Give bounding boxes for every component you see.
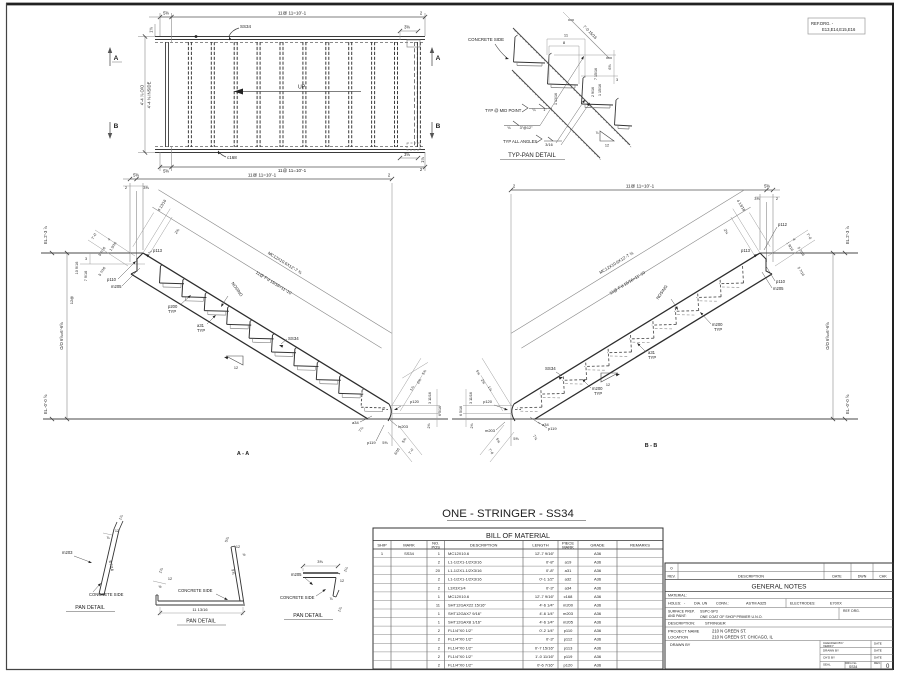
svg-text:p119: p119	[367, 440, 376, 445]
svg-text:3⅝: 3⅝	[317, 559, 323, 564]
svg-text:p113: p113	[741, 248, 751, 253]
svg-text:a19: a19	[565, 560, 572, 565]
svg-text:1’-0 11/16”: 1’-0 11/16”	[535, 654, 554, 659]
svg-text:BILL OF MATERIAL: BILL OF MATERIAL	[486, 531, 550, 540]
svg-text:TYP: TYP	[714, 327, 722, 332]
svg-text:20: 20	[436, 568, 441, 573]
svg-text:L1-1/2X1-1/2X3/16: L1-1/2X1-1/2X3/16	[448, 560, 482, 565]
svg-text:0’-3”: 0’-3”	[546, 637, 555, 642]
svg-text:SS34: SS34	[404, 551, 415, 556]
svg-text:3⅝: 3⅝	[404, 152, 410, 157]
svg-text:SHIP: SHIP	[377, 543, 387, 548]
svg-text:REV.: REV.	[667, 575, 675, 579]
svg-text:p112: p112	[778, 222, 788, 227]
svg-text:A36: A36	[594, 568, 602, 573]
svg-text:m205: m205	[111, 284, 122, 289]
svg-text:FL1/4”X0 1/2”: FL1/4”X0 1/2”	[448, 637, 473, 642]
svg-text:DATE: DATE	[874, 649, 882, 653]
svg-text:SS34: SS34	[288, 336, 299, 341]
svg-text:1⅛: 1⅛	[420, 157, 425, 163]
svg-text:MATERIAL:: MATERIAL:	[668, 594, 687, 598]
svg-text:210 N GREEN ST.: 210 N GREEN ST.	[712, 629, 746, 634]
svg-text:REF.DRG. -: REF.DRG. -	[811, 21, 834, 26]
svg-text:p110: p110	[776, 279, 786, 284]
svg-text:DESCRIPTION:: DESCRIPTION:	[668, 622, 695, 626]
svg-text:SSPC-SP3: SSPC-SP3	[700, 610, 718, 614]
svg-text:4’-4 ⅞ O/O: 4’-4 ⅞ O/O	[140, 84, 145, 105]
svg-text:6 5/16: 6 5/16	[438, 406, 442, 416]
svg-text:EL.-0’-0 ⅝: EL.-0’-0 ⅝	[845, 394, 850, 414]
svg-text:A36: A36	[594, 585, 602, 590]
svg-text:p110: p110	[107, 277, 117, 282]
svg-text:TYP: TYP	[648, 355, 656, 360]
svg-text:MARK: MARK	[403, 543, 415, 548]
svg-text:4’-6 1/4”: 4’-6 1/4”	[539, 620, 554, 625]
svg-text:A36: A36	[594, 611, 602, 616]
svg-text:VERIFY: VERIFY	[823, 644, 834, 648]
svg-text:12: 12	[168, 577, 172, 581]
svg-text:m203: m203	[62, 550, 73, 555]
svg-text:12: 12	[605, 144, 609, 148]
svg-text:12’-7 9/16”: 12’-7 9/16”	[535, 594, 555, 599]
svg-text:c168: c168	[227, 155, 237, 160]
svg-text:REV.: REV.	[874, 661, 881, 665]
svg-text:11@ 11=10’-1: 11@ 11=10’-1	[278, 168, 307, 173]
svg-text:a32: a32	[565, 577, 572, 582]
svg-text:AND PAINT:: AND PAINT:	[668, 614, 686, 618]
svg-text:SS34: SS34	[849, 665, 857, 669]
svg-text:REF. DRG.: REF. DRG.	[843, 609, 860, 613]
svg-text:3/16: 3/16	[545, 143, 552, 147]
svg-text:A36: A36	[594, 594, 602, 599]
svg-text:m205: m205	[291, 572, 302, 577]
svg-text:3: 3	[85, 257, 87, 261]
svg-text:12: 12	[115, 529, 119, 533]
svg-text:0’-1 1/2”: 0’-1 1/2”	[539, 577, 554, 582]
svg-text:A: A	[436, 55, 441, 62]
svg-text:FL1/4”X0 1/2”: FL1/4”X0 1/2”	[448, 628, 473, 633]
svg-text:m200: m200	[563, 602, 574, 607]
svg-text:MC12X10.6: MC12X10.6	[448, 551, 470, 556]
svg-text:A: A	[114, 55, 119, 62]
svg-text:POS: POS	[431, 545, 440, 550]
svg-text:PROJECT NAME: PROJECT NAME	[668, 629, 700, 634]
svg-text:HOLES:: HOLES:	[668, 602, 681, 606]
svg-text:EL.-0’-0 ⅝: EL.-0’-0 ⅝	[43, 394, 48, 414]
svg-text:12: 12	[606, 383, 610, 387]
svg-text:DRAWN BY: DRAWN BY	[823, 649, 839, 653]
svg-text:p120: p120	[410, 399, 420, 404]
svg-text:E13,E14,E15,E16: E13,E14,E15,E16	[822, 27, 856, 32]
svg-text:c168: c168	[564, 594, 573, 599]
svg-text:A36: A36	[594, 560, 602, 565]
svg-text:7 15/16: 7 15/16	[594, 68, 598, 80]
svg-text:6⅜: 6⅜	[608, 64, 612, 70]
svg-text:12: 12	[236, 545, 240, 549]
svg-text:STRINGER: STRINGER	[705, 621, 726, 626]
svg-text:FL1/4”X0 1/2”: FL1/4”X0 1/2”	[448, 645, 473, 650]
svg-text:DRAWN BY: DRAWN BY	[670, 643, 691, 647]
svg-text:CONCRETE SIDE: CONCRETE SIDE	[178, 588, 213, 593]
svg-text:m205: m205	[773, 286, 784, 291]
svg-text:CONCRETE SIDE: CONCRETE SIDE	[280, 595, 315, 600]
svg-text:SS34: SS34	[240, 24, 252, 29]
svg-text:CONCRETE SIDE: CONCRETE SIDE	[468, 37, 504, 42]
svg-text:FL1/4”X0 1/2”: FL1/4”X0 1/2”	[448, 662, 473, 667]
svg-text:11@ 11=10’-1: 11@ 11=10’-1	[248, 173, 277, 178]
svg-text:ONE - STRINGER - SS34: ONE - STRINGER - SS34	[442, 508, 574, 520]
svg-text:1⅛: 1⅛	[149, 27, 154, 33]
svg-text:GENERAL NOTES: GENERAL NOTES	[751, 584, 807, 591]
svg-text:12: 12	[340, 579, 344, 583]
svg-text:CONCRETE SIDE: CONCRETE SIDE	[89, 592, 124, 597]
svg-text:p119: p119	[564, 654, 573, 659]
svg-text:p119: p119	[548, 426, 557, 431]
svg-text:11 13/16: 11 13/16	[192, 607, 208, 612]
svg-text:UP: UP	[298, 85, 306, 91]
svg-text:A36: A36	[594, 654, 602, 659]
svg-text:11@ 11=10’-1: 11@ 11=10’-1	[278, 11, 307, 16]
svg-text:L3X3X1/4: L3X3X1/4	[448, 585, 466, 590]
svg-text:SHT12GAX7 9/16”: SHT12GAX7 9/16”	[448, 611, 482, 616]
svg-text:B: B	[114, 123, 119, 130]
svg-text:0’-7 15/16”: 0’-7 15/16”	[535, 645, 555, 650]
svg-text:DWN: DWN	[858, 575, 867, 579]
svg-text:SHT12GAX8 1/16”: SHT12GAX8 1/16”	[448, 620, 482, 625]
svg-text:LENGTH: LENGTH	[532, 543, 548, 548]
svg-text:A36: A36	[594, 577, 602, 582]
svg-text:A36: A36	[594, 602, 602, 607]
svg-text:⅞: ⅞	[596, 131, 599, 135]
svg-text:O/O 6⅝=6’-6⅝: O/O 6⅝=6’-6⅝	[825, 322, 830, 350]
svg-text:DESCRIPTION: DESCRIPTION	[738, 575, 764, 579]
svg-text:DATE: DATE	[874, 656, 882, 660]
svg-text:MARK: MARK	[562, 545, 574, 550]
svg-text:E70XX: E70XX	[830, 602, 842, 606]
svg-text:0’-8”: 0’-8”	[546, 560, 555, 565]
svg-text:DATE: DATE	[832, 575, 842, 579]
svg-text:6 5/16: 6 5/16	[459, 406, 463, 416]
svg-text:4’-6 1/4”: 4’-6 1/4”	[539, 602, 554, 607]
svg-text:TYP: TYP	[197, 328, 205, 333]
svg-text:3”@12”: 3”@12”	[520, 126, 533, 130]
svg-text:a34: a34	[352, 420, 359, 425]
svg-text:A36: A36	[594, 628, 602, 633]
svg-text:TYP ALL ANGLES: TYP ALL ANGLES	[503, 139, 537, 144]
svg-text:0’-3”: 0’-3”	[546, 585, 555, 590]
svg-text:PAN DETAIL: PAN DETAIL	[293, 613, 323, 619]
svg-text:4’-6 1/4”: 4’-6 1/4”	[539, 611, 554, 616]
svg-text:ONE COAT OF SHOP PRIMER U.N.O.: ONE COAT OF SHOP PRIMER U.N.O.	[700, 615, 763, 619]
svg-text:GRADE: GRADE	[590, 543, 605, 548]
svg-text:3⅝: 3⅝	[404, 25, 410, 30]
svg-text:12@: 12@	[69, 296, 74, 305]
svg-text:5⅝: 5⅝	[163, 11, 169, 16]
svg-text:A - A: A - A	[237, 451, 249, 457]
svg-text:A36: A36	[594, 662, 602, 667]
svg-text:SHT12GAX22 15/16”: SHT12GAX22 15/16”	[448, 602, 486, 607]
svg-text:A36: A36	[594, 637, 602, 642]
svg-text:MC12X10.6: MC12X10.6	[448, 594, 470, 599]
svg-text:½: ½	[243, 553, 246, 557]
svg-text:4’-4 ⅜ INSIDE: 4’-4 ⅜ INSIDE	[147, 81, 152, 108]
svg-text:L1-1/2X1-1/2X3/16: L1-1/2X1-1/2X3/16	[448, 577, 482, 582]
svg-text:A36: A36	[594, 620, 602, 625]
svg-text:p120: p120	[564, 662, 574, 667]
svg-text:12: 12	[234, 366, 238, 370]
svg-text:0’-8”: 0’-8”	[546, 568, 555, 573]
svg-text:3: 3	[616, 78, 618, 82]
svg-text:210 N GREEN ST. CHICAGO, IL: 210 N GREEN ST. CHICAGO, IL	[712, 635, 774, 640]
svg-text:5⅝: 5⅝	[382, 441, 388, 445]
svg-text:2⅝: 2⅝	[427, 424, 431, 429]
svg-text:DATE: DATE	[874, 642, 882, 646]
svg-text:1 15/16: 1 15/16	[598, 84, 602, 96]
svg-text:ELECTRODES:: ELECTRODES:	[790, 602, 815, 606]
svg-text:CH’D BY: CH’D BY	[823, 656, 835, 660]
svg-text:B: B	[436, 123, 441, 130]
svg-text:½: ½	[159, 585, 162, 589]
svg-text:PAN DETAIL: PAN DETAIL	[75, 605, 105, 611]
svg-text:LOCATION: LOCATION	[668, 635, 688, 640]
svg-text:PAN DETAIL: PAN DETAIL	[186, 619, 216, 625]
svg-text:B - B: B - B	[645, 443, 658, 449]
svg-text:m203: m203	[485, 428, 496, 433]
svg-text:EL.2’-3 ⅞: EL.2’-3 ⅞	[43, 226, 48, 244]
svg-text:TYP @ MID POINT: TYP @ MID POINT	[485, 108, 522, 113]
svg-text:ASTM A325: ASTM A325	[746, 602, 766, 606]
svg-text:0’-6 7/16”: 0’-6 7/16”	[537, 662, 555, 667]
svg-text:a31: a31	[565, 568, 572, 573]
svg-text:5⅝: 5⅝	[513, 437, 519, 441]
svg-text:EL.2’-3 ⅞: EL.2’-3 ⅞	[845, 226, 850, 244]
svg-text:A36: A36	[594, 645, 602, 650]
svg-text:TYP: TYP	[594, 391, 602, 396]
svg-text:SEAL: SEAL	[823, 663, 831, 667]
svg-text:1 13/16: 1 13/16	[554, 93, 558, 105]
svg-text:2 9/16: 2 9/16	[591, 87, 595, 97]
svg-text:11@ 11=10’-1: 11@ 11=10’-1	[626, 184, 655, 189]
svg-text:a34: a34	[565, 585, 572, 590]
svg-text:p120: p120	[483, 399, 493, 404]
svg-text:p112: p112	[564, 637, 573, 642]
svg-text:FL1/4”X0 1/2”: FL1/4”X0 1/2”	[448, 654, 473, 659]
svg-text:A36: A36	[594, 551, 602, 556]
svg-text:DESCRIPTION: DESCRIPTION	[470, 543, 497, 548]
svg-text:SS34: SS34	[545, 366, 556, 371]
svg-text:TYP: TYP	[168, 309, 176, 314]
svg-text:3 11/16: 3 11/16	[428, 392, 432, 404]
svg-text:5⅝: 5⅝	[163, 169, 169, 174]
svg-text:5⅝: 5⅝	[764, 184, 770, 189]
svg-text:7 9/16: 7 9/16	[84, 271, 88, 282]
svg-text:3 11/16: 3 11/16	[469, 392, 473, 404]
svg-text:L1-1/2X1-1/2X3/16: L1-1/2X1-1/2X3/16	[448, 568, 482, 573]
svg-text:TYP-PAN DETAIL: TYP-PAN DETAIL	[508, 153, 556, 159]
svg-text:CHK: CHK	[879, 575, 887, 579]
svg-text:10 9/16: 10 9/16	[75, 262, 79, 275]
svg-text:m203: m203	[398, 424, 409, 429]
svg-text:m203: m203	[563, 611, 574, 616]
svg-text:0’-2 1/4”: 0’-2 1/4”	[539, 628, 554, 633]
svg-text:p113: p113	[153, 248, 163, 253]
svg-text:DIA. UN: DIA. UN	[694, 602, 708, 606]
svg-text:p113: p113	[564, 645, 573, 650]
svg-text:12’-7 9/16”: 12’-7 9/16”	[535, 551, 555, 556]
svg-text:SURFACE PREP.: SURFACE PREP.	[668, 610, 695, 614]
svg-text:REMARKS: REMARKS	[630, 543, 650, 548]
svg-text:p110: p110	[564, 628, 573, 633]
svg-text:2⅝: 2⅝	[470, 424, 474, 429]
svg-text:CONN.:: CONN.:	[716, 602, 729, 606]
svg-text:O/O 6⅝=6’-6⅝: O/O 6⅝=6’-6⅝	[59, 322, 64, 350]
svg-text:5⅝: 5⅝	[133, 173, 139, 178]
svg-text:m205: m205	[563, 620, 574, 625]
